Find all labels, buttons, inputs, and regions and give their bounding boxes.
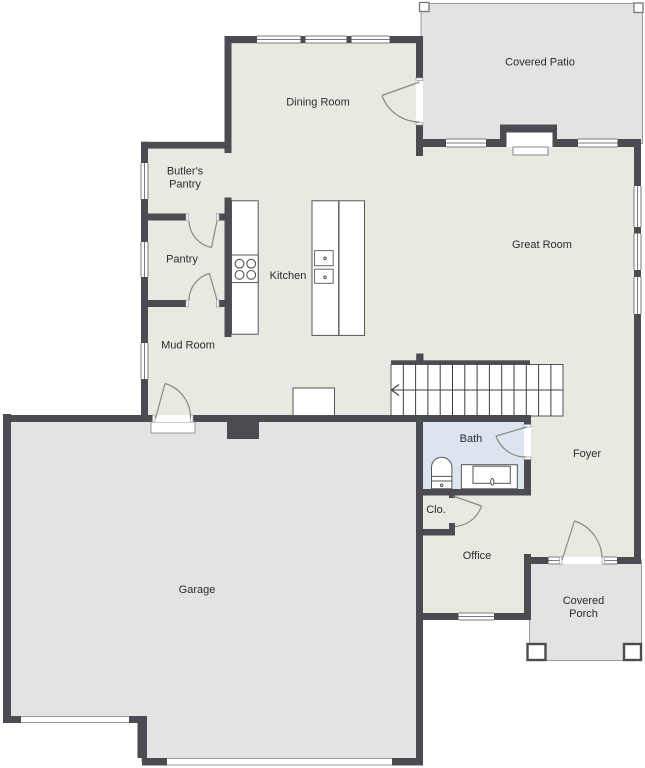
svg-text:Butler's: Butler's (167, 166, 204, 178)
svg-text:Mud Room: Mud Room (161, 340, 215, 352)
svg-text:Bath: Bath (460, 433, 483, 445)
svg-text:Pantry: Pantry (166, 254, 198, 266)
svg-text:Garage: Garage (179, 584, 216, 596)
svg-text:Dining Room: Dining Room (286, 97, 350, 109)
svg-text:Covered: Covered (563, 595, 605, 607)
svg-text:Clo.: Clo. (426, 504, 446, 516)
svg-text:Porch: Porch (569, 608, 598, 620)
svg-text:Kitchen: Kitchen (270, 270, 307, 282)
svg-text:Great Room: Great Room (512, 239, 572, 251)
svg-text:Pantry: Pantry (169, 179, 201, 191)
svg-text:Covered Patio: Covered Patio (505, 57, 575, 69)
svg-text:Foyer: Foyer (573, 448, 601, 460)
svg-text:Office: Office (463, 550, 492, 562)
